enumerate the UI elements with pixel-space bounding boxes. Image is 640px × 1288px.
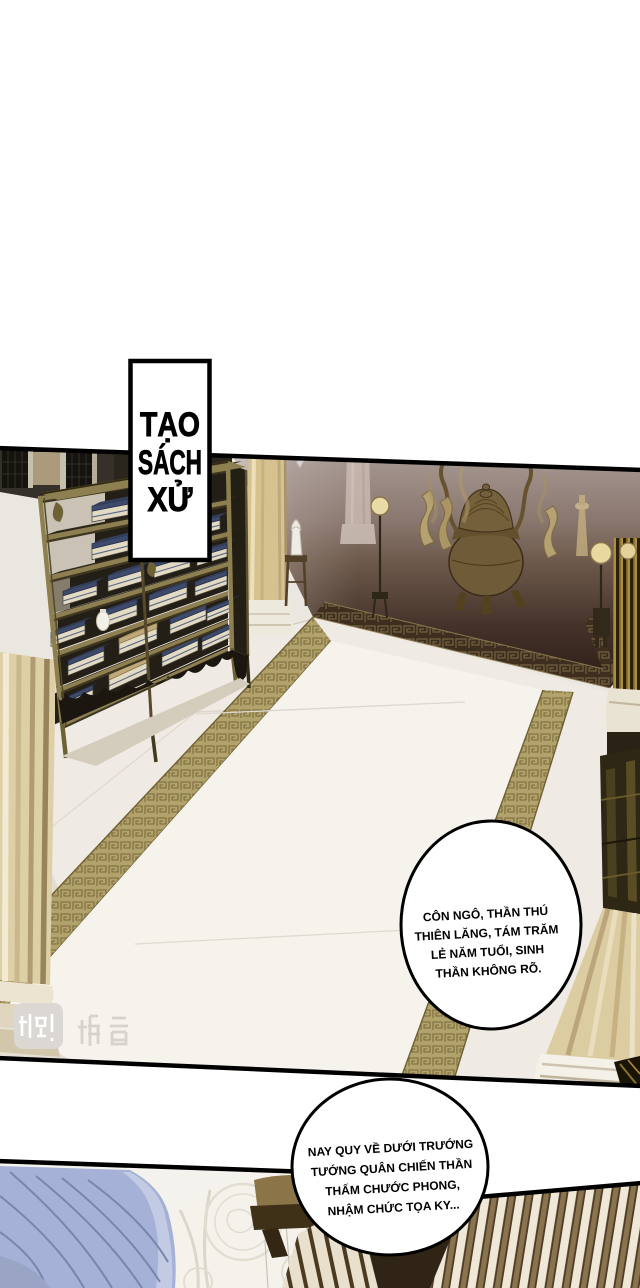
svg-text:SÁCH: SÁCH (138, 444, 202, 482)
svg-text:TẠO: TẠO (140, 406, 200, 444)
svg-text:XỬ: XỬ (148, 481, 194, 519)
